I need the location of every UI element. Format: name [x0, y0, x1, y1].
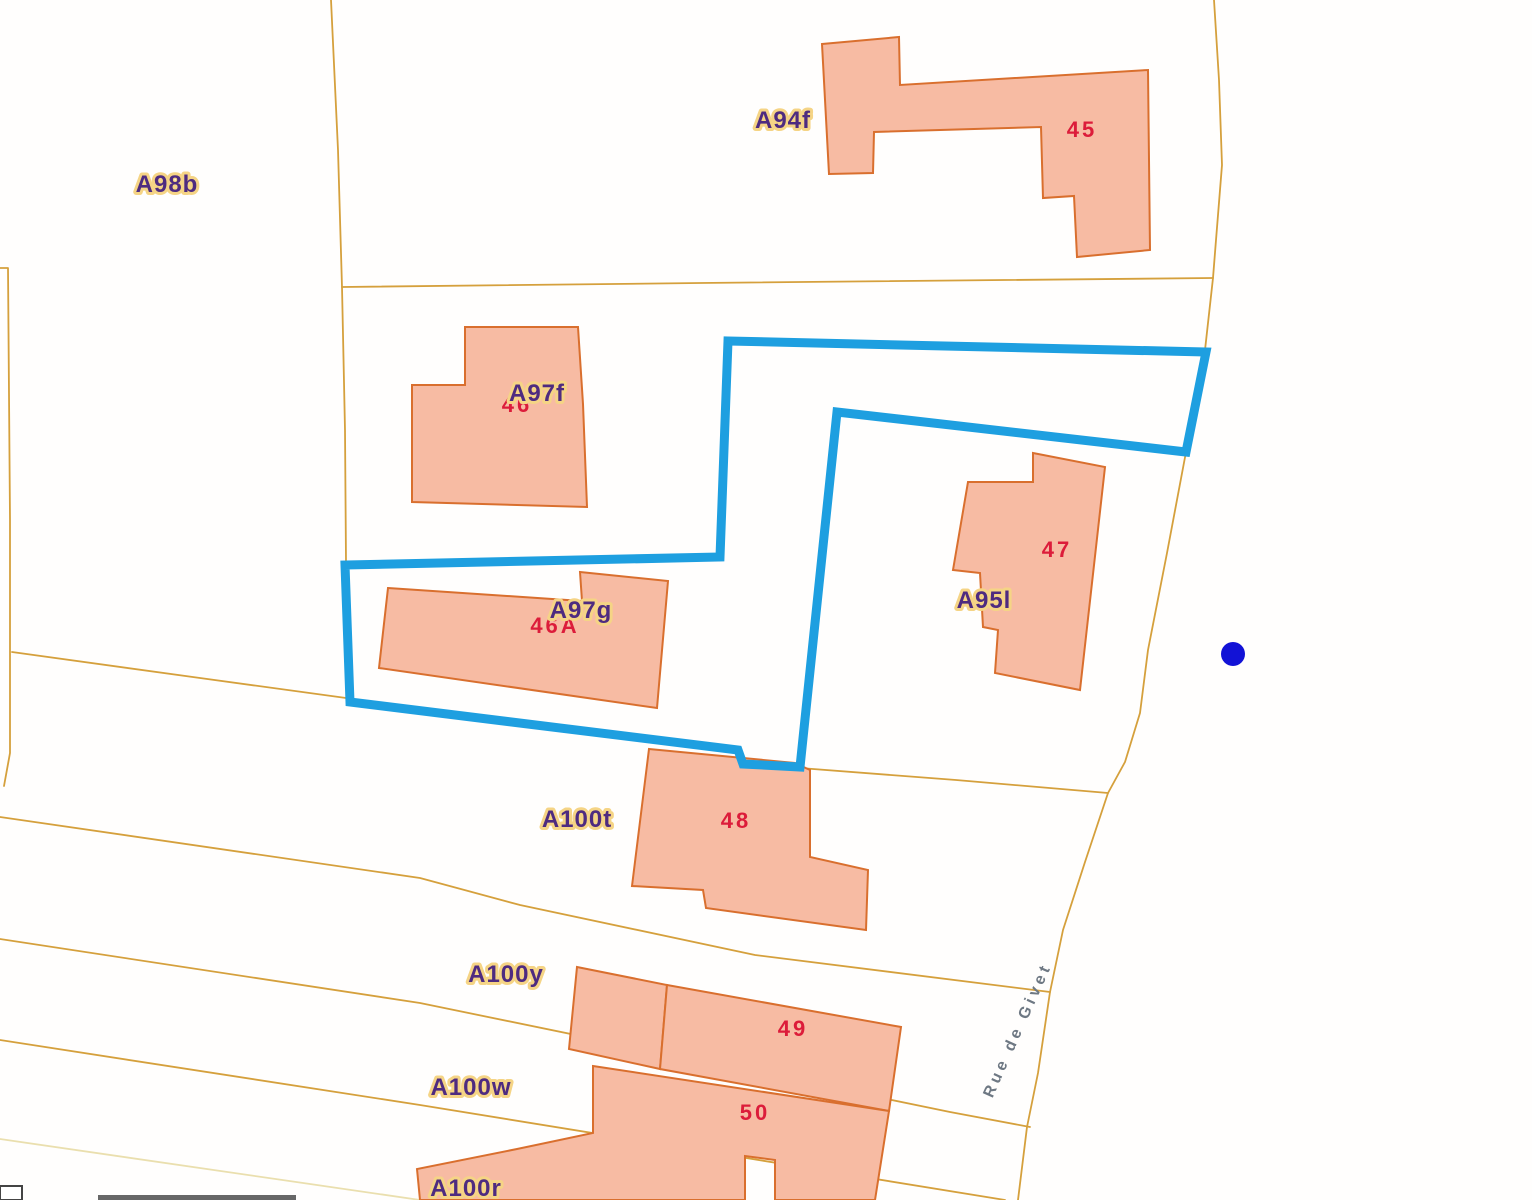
parcel-boundary-b [342, 278, 1213, 287]
parcel-label-A97g: A97g [550, 597, 613, 624]
layer-buildings [379, 37, 1150, 1200]
parcel-label-A100y: A100y [468, 961, 544, 988]
building-number-45: 45 [1067, 117, 1097, 142]
parcel-boundary-j [0, 1139, 420, 1200]
layer-markers [1221, 642, 1245, 666]
building-number-48: 48 [721, 808, 751, 833]
parcel-label-A95l: A95l [957, 587, 1012, 614]
map-canvas[interactable]: 454646A47484950 A98bA94fA97fA97gA95lA100… [0, 0, 1532, 1200]
layer-scalebar [0, 1186, 296, 1200]
map-svg[interactable]: 454646A47484950 A98bA94fA97fA97gA95lA100… [0, 0, 1532, 1200]
parcel-label-A100r: A100r [430, 1175, 502, 1200]
scale-box [0, 1186, 22, 1200]
parcel-label-A100t: A100t [542, 806, 612, 833]
building-46A[interactable] [379, 572, 668, 708]
building-46[interactable] [412, 327, 587, 507]
scale-bar [98, 1195, 296, 1200]
parcel-boundary-f-west [12, 652, 346, 698]
parcel-label-A97f: A97f [509, 380, 565, 407]
parcel-label-A100w: A100w [430, 1074, 511, 1101]
building-number-49: 49 [778, 1016, 808, 1041]
building-47[interactable] [953, 453, 1105, 690]
result-marker-dot [1221, 642, 1245, 666]
building-45[interactable] [822, 37, 1150, 257]
building-number-50: 50 [740, 1100, 770, 1125]
parcel-label-A94f: A94f [755, 107, 811, 134]
parcel-boundary-f-east [800, 768, 1108, 793]
parcel-label-A98b: A98b [136, 171, 199, 198]
building-48[interactable] [632, 749, 868, 930]
building-number-47: 47 [1042, 537, 1072, 562]
building-49-left[interactable] [569, 967, 667, 1069]
parcel-boundary-d [342, 287, 346, 562]
parcel-boundary-a [331, 0, 342, 287]
parcel-boundary-e [0, 268, 10, 786]
